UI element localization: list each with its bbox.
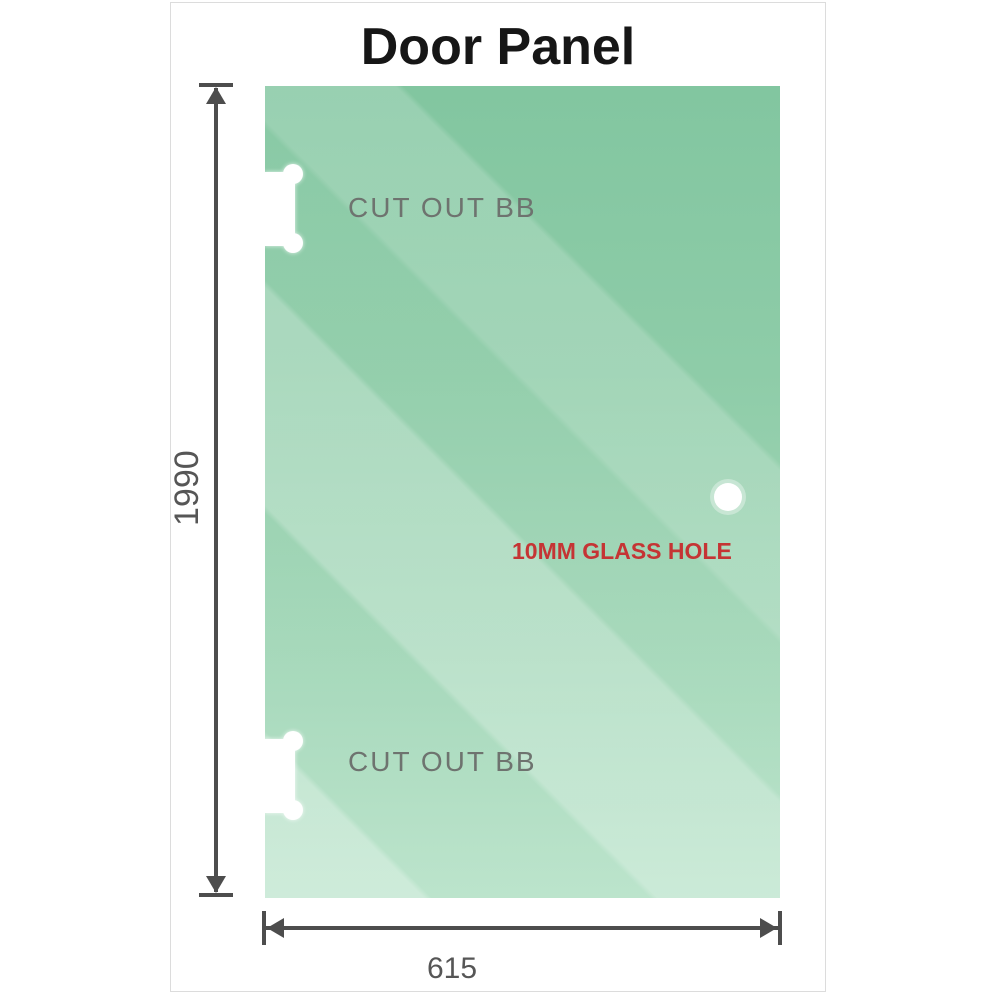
width-dimension-cap-right	[778, 911, 782, 945]
arrow-right-icon	[760, 918, 777, 938]
arrow-down-icon	[206, 876, 226, 893]
height-dimension-label: 1990	[168, 454, 206, 526]
door-panel-diagram: Door Panel 1990 615 CUT OUT BB CUT OUT B…	[0, 0, 1000, 1000]
glass-hole-label: 10MM GLASS HOLE	[512, 538, 732, 565]
arrow-left-icon	[267, 918, 284, 938]
glass-hole	[714, 483, 742, 511]
cutout-top	[264, 164, 308, 254]
arrow-up-icon	[206, 87, 226, 104]
height-dimension-line	[214, 88, 218, 892]
cutout-bottom	[264, 731, 308, 821]
cutout-bottom-label: CUT OUT BB	[348, 746, 537, 778]
height-dimension-cap-bottom	[199, 893, 233, 897]
width-dimension-line	[266, 926, 778, 930]
page-title: Door Panel	[170, 16, 826, 78]
cutout-top-label: CUT OUT BB	[348, 192, 537, 224]
width-dimension-label: 615	[412, 952, 492, 986]
